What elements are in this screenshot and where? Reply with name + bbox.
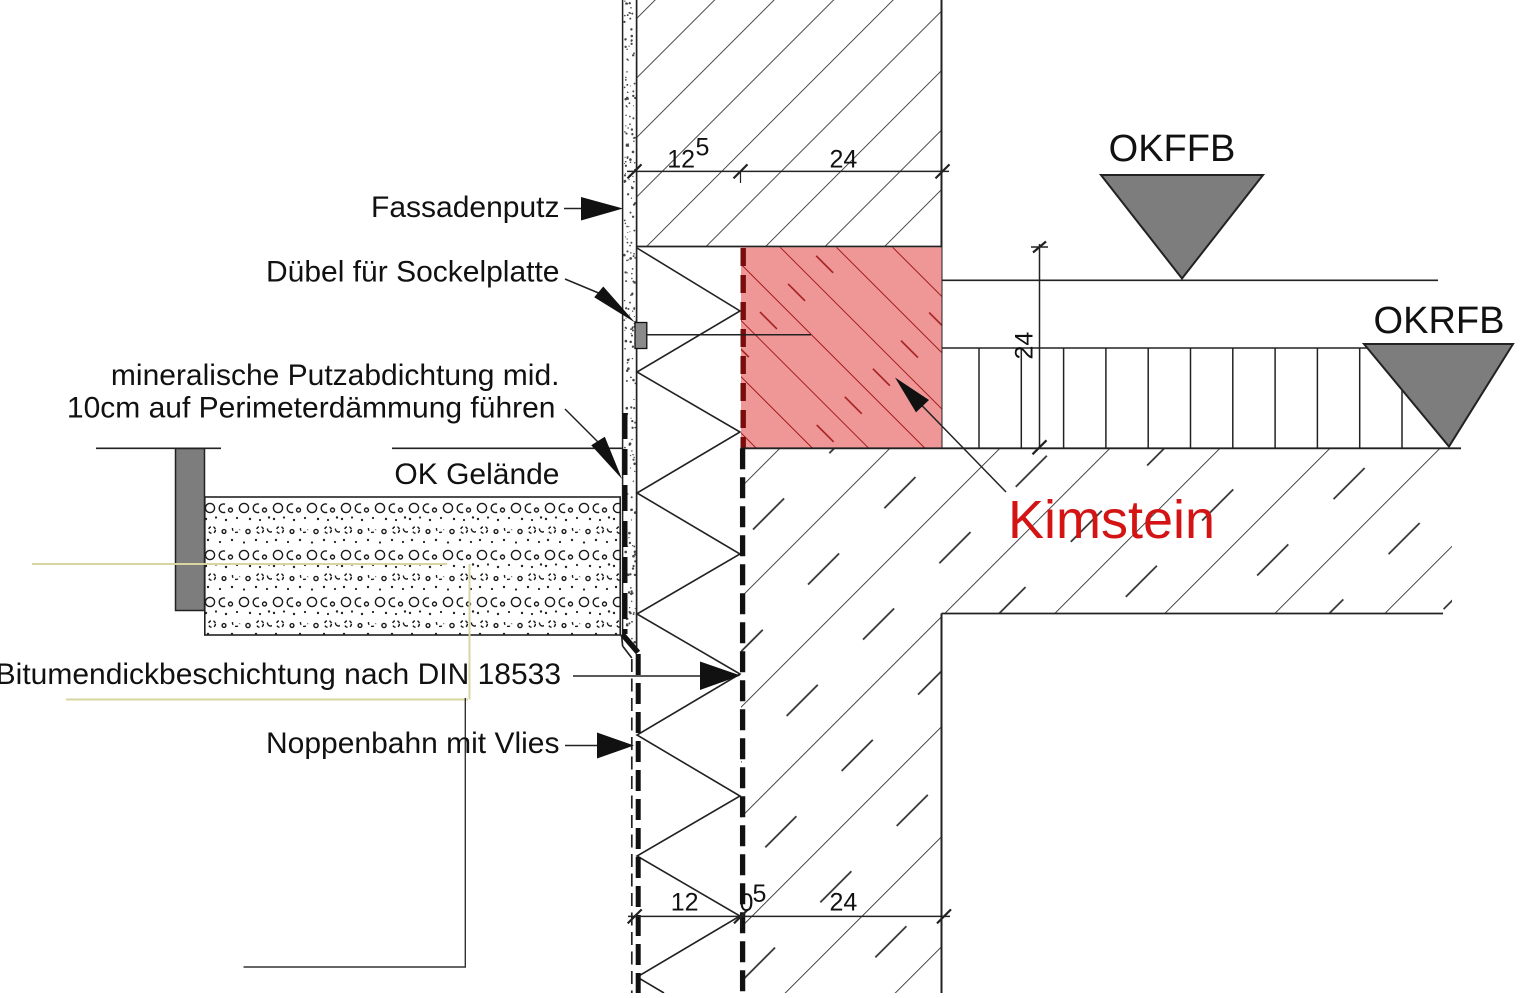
svg-text:OK Gelände: OK Gelände [394,458,559,491]
svg-text:24: 24 [830,146,858,174]
svg-text:12: 12 [671,889,699,917]
svg-text:mineralische Putzabdichtung mi: mineralische Putzabdichtung mid. [111,359,560,392]
svg-text:Dübel für Sockelplatte: Dübel für Sockelplatte [266,256,560,289]
svg-text:OKFFB: OKFFB [1109,128,1236,170]
svg-text:10cm auf Perimeterdämmung führ: 10cm auf Perimeterdämmung führen [67,392,556,425]
svg-text:Noppenbahn mit Vlies: Noppenbahn mit Vlies [266,727,560,760]
svg-text:OKRFB: OKRFB [1374,300,1505,342]
svg-text:Fassadenputz: Fassadenputz [371,191,559,224]
svg-text:5: 5 [696,134,710,162]
svg-text:Kimstein: Kimstein [1008,490,1215,550]
svg-text:24: 24 [830,889,858,917]
svg-text:5: 5 [753,880,767,908]
svg-text:24: 24 [1011,332,1039,360]
svg-text:Bitumendickbeschichtung nach D: Bitumendickbeschichtung nach DIN 18533 [0,658,561,691]
svg-text:12: 12 [667,146,695,174]
svg-text:0: 0 [740,889,754,917]
